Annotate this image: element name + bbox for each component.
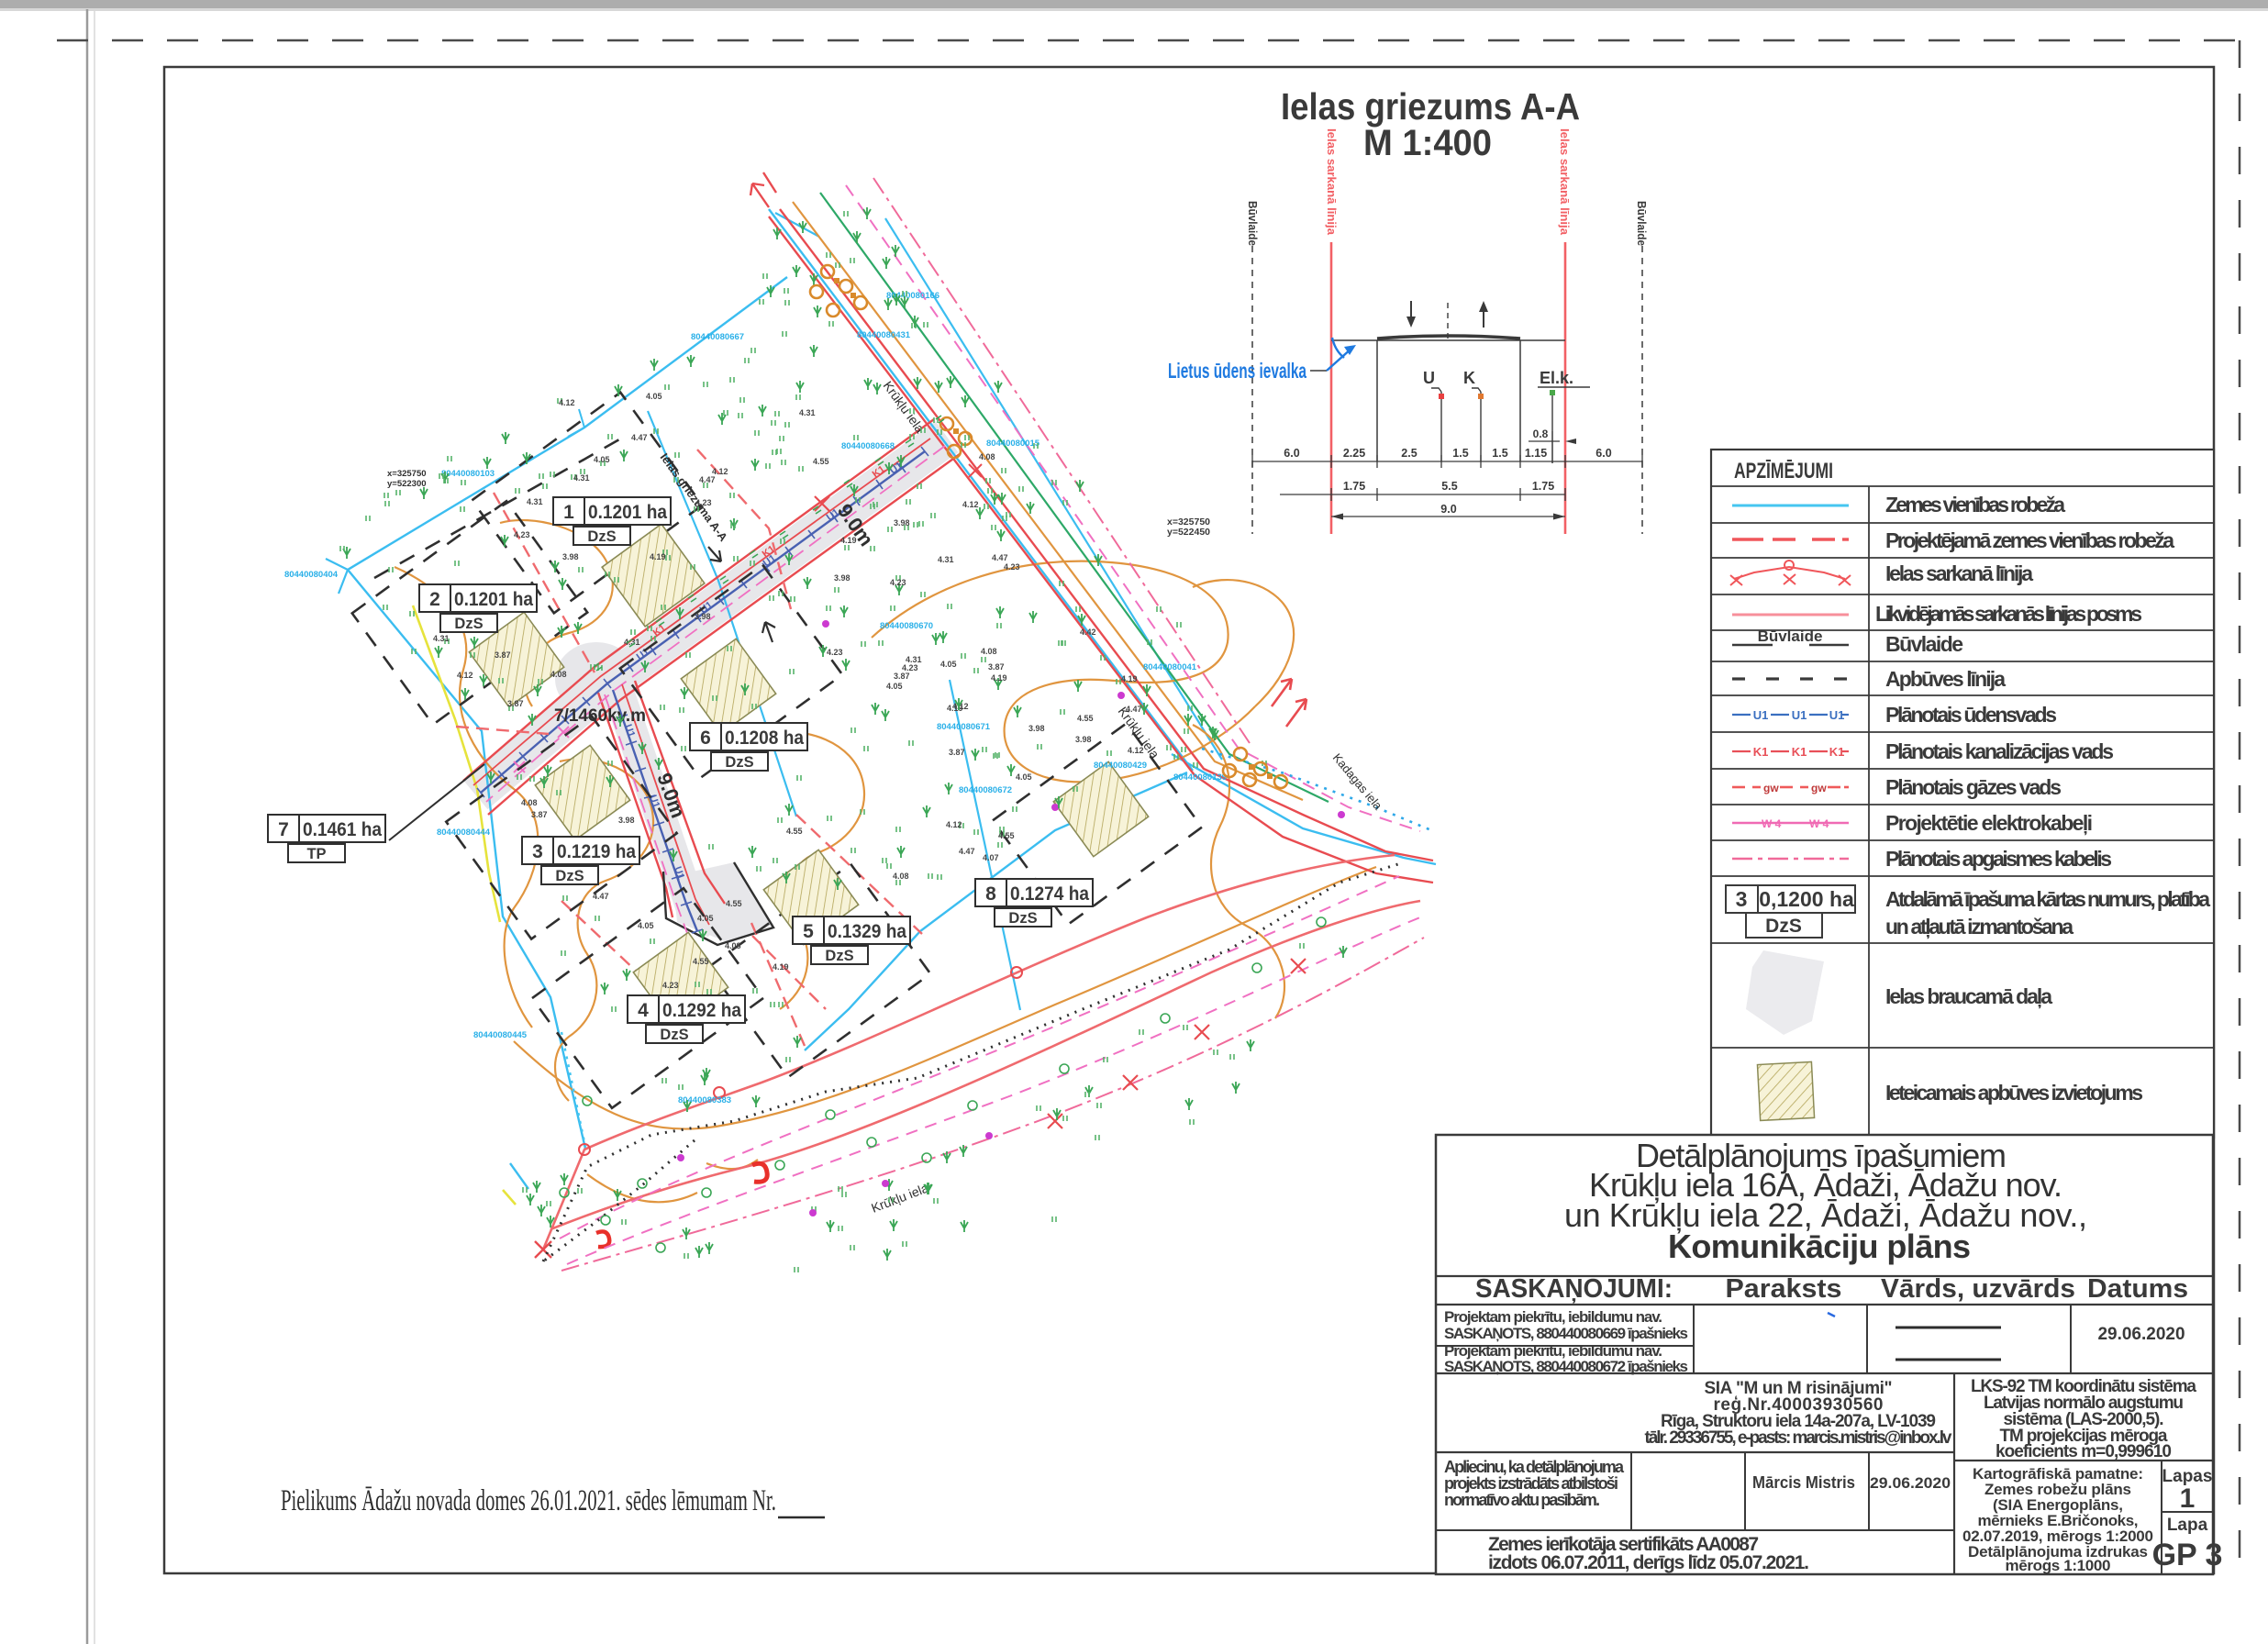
svg-text:Plānotais gāzes vads: Plānotais gāzes vads: [1885, 775, 2062, 799]
svg-text:tālr. 29336755, e-pasts: marci: tālr. 29336755, e-pasts: marcis.mistris@…: [1645, 1428, 1952, 1448]
svg-text:1: 1: [2180, 1483, 2196, 1514]
svg-text:izdots 06.07.2011, derīgs līdz: izdots 06.07.2011, derīgs līdz 05.07.202…: [1488, 1552, 1809, 1573]
svg-text:DzS: DzS: [587, 528, 616, 545]
svg-text:gw: gw: [1811, 782, 1827, 794]
svg-text:80440080139: 80440080139: [1173, 772, 1227, 783]
svg-text:4.47: 4.47: [699, 475, 716, 484]
svg-text:4.19: 4.19: [947, 704, 963, 713]
svg-text:80440080667: 80440080667: [691, 332, 744, 342]
svg-text:80440080404: 80440080404: [284, 570, 339, 580]
svg-text:2.25: 2.25: [1343, 447, 1365, 460]
svg-text:80440080671: 80440080671: [937, 722, 991, 732]
svg-text:0,1200 ha: 0,1200 ha: [1759, 887, 1854, 911]
svg-text:TP: TP: [306, 846, 326, 862]
svg-text:K1: K1: [1792, 745, 1807, 759]
svg-text:U1: U1: [1753, 708, 1769, 722]
svg-text:DzS: DzS: [454, 616, 483, 632]
svg-text:80440080672: 80440080672: [959, 785, 1012, 795]
svg-text:29.06.2020: 29.06.2020: [1870, 1474, 1951, 1492]
svg-text:APZĪMĒJUMI: APZĪMĒJUMI: [1734, 459, 1833, 483]
svg-text:Plānotais apgaismes kabelis: Plānotais apgaismes kabelis: [1885, 847, 2112, 871]
svg-text:3.87: 3.87: [988, 662, 1005, 672]
svg-text:4.08: 4.08: [893, 872, 909, 881]
svg-text:4.55: 4.55: [998, 831, 1015, 840]
svg-text:4.23: 4.23: [902, 663, 918, 672]
svg-text:1.15: 1.15: [1525, 447, 1547, 460]
svg-text:2: 2: [429, 589, 440, 610]
svg-text:U: U: [1423, 369, 1435, 387]
svg-text:DzS: DzS: [725, 754, 753, 771]
svg-text:4.31: 4.31: [433, 634, 450, 643]
svg-text:y=522300: y=522300: [387, 479, 427, 489]
svg-text:3.98: 3.98: [894, 518, 910, 528]
svg-text:4.55: 4.55: [693, 957, 709, 966]
svg-text:4.08: 4.08: [550, 670, 567, 679]
svg-text:El.k.: El.k.: [1540, 369, 1573, 387]
svg-text:4.47: 4.47: [631, 433, 648, 442]
svg-text:29.06.2020: 29.06.2020: [2097, 1325, 2185, 1344]
svg-text:U1: U1: [1792, 708, 1807, 722]
svg-text:4.08: 4.08: [981, 647, 997, 656]
svg-text:Ielas sarkanā līnija: Ielas sarkanā līnija: [1885, 561, 2033, 585]
svg-text:un atļautā izmantošana: un atļautā izmantošana: [1885, 915, 2073, 939]
svg-text:SASKAŅOTS, 880440080669 īpašni: SASKAŅOTS, 880440080669 īpašnieks: [1444, 1325, 1688, 1342]
svg-text:1: 1: [563, 502, 574, 523]
svg-text:80440080668: 80440080668: [841, 441, 895, 451]
svg-text:4.05: 4.05: [646, 392, 662, 401]
svg-text:3.98: 3.98: [1075, 735, 1092, 744]
svg-text:0.1292 ha: 0.1292 ha: [662, 1000, 741, 1021]
svg-text:Projektam piekrītu, iebildumu: Projektam piekrītu, iebildumu nav.: [1444, 1308, 1662, 1326]
svg-text:80440080431: 80440080431: [857, 330, 911, 340]
svg-text:3: 3: [532, 841, 543, 862]
svg-text:4.12: 4.12: [962, 500, 979, 509]
svg-text:4.31: 4.31: [573, 473, 590, 483]
svg-text:Būvlaide: Būvlaide: [1885, 632, 1963, 656]
svg-text:0.1208 ha: 0.1208 ha: [725, 728, 804, 749]
svg-text:80440080041: 80440080041: [1143, 662, 1197, 672]
svg-text:4.19: 4.19: [991, 673, 1007, 683]
svg-text:4.55: 4.55: [1077, 714, 1094, 723]
svg-text:4.47: 4.47: [959, 847, 975, 856]
svg-text:4.19: 4.19: [773, 962, 789, 972]
svg-text:3.87: 3.87: [507, 699, 524, 708]
svg-text:9.0: 9.0: [1440, 503, 1456, 516]
svg-text:SASKAŅOJUMI:: SASKAŅOJUMI:: [1475, 1274, 1673, 1304]
svg-text:Būvlaide: Būvlaide: [1758, 628, 1823, 645]
svg-text:Projektējamā zemes vienības ro: Projektējamā zemes vienības robeža: [1885, 528, 2174, 552]
svg-text:6.0: 6.0: [1284, 447, 1299, 460]
svg-text:3.87: 3.87: [531, 810, 548, 819]
svg-text:2.5: 2.5: [1401, 447, 1417, 460]
svg-text:Lietus ūdens ievalka: Lietus ūdens ievalka: [1168, 359, 1306, 383]
svg-text:Vārds, uzvārds: Vārds, uzvārds: [1881, 1274, 2075, 1304]
svg-text:0.1329 ha: 0.1329 ha: [828, 921, 906, 942]
svg-text:4.19: 4.19: [840, 536, 857, 545]
svg-text:4.55: 4.55: [786, 827, 803, 836]
svg-text:4.08: 4.08: [979, 452, 995, 461]
svg-text:W 4: W 4: [1809, 817, 1829, 830]
svg-text:0.8: 0.8: [1533, 428, 1549, 440]
svg-text:4.23: 4.23: [827, 648, 843, 657]
svg-text:4.47: 4.47: [1126, 705, 1142, 714]
svg-text:1.5: 1.5: [1452, 447, 1468, 460]
svg-text:4.47: 4.47: [593, 892, 609, 901]
svg-text:Komunikāciju plāns: Komunikāciju plāns: [1668, 1227, 1971, 1265]
svg-text:3.98: 3.98: [618, 816, 635, 825]
svg-text:80440080445: 80440080445: [473, 1030, 528, 1040]
svg-text:4.08: 4.08: [725, 941, 741, 950]
svg-text:y=522450: y=522450: [1167, 527, 1210, 538]
svg-text:0.1219 ha: 0.1219 ha: [557, 841, 636, 862]
svg-text:4.23: 4.23: [695, 498, 712, 507]
svg-text:6: 6: [700, 728, 711, 749]
svg-text:4.23: 4.23: [890, 578, 906, 587]
svg-text:Atdalāmā īpašuma kārtas numurs: Atdalāmā īpašuma kārtas numurs, platība: [1885, 887, 2210, 911]
svg-text:4.42: 4.42: [1080, 628, 1096, 637]
svg-text:4.12: 4.12: [712, 467, 728, 476]
svg-text:1.5: 1.5: [1492, 447, 1507, 460]
svg-text:4.05: 4.05: [940, 660, 957, 669]
svg-text:7: 7: [278, 819, 289, 840]
svg-text:DzS: DzS: [825, 948, 853, 964]
svg-text:4.05: 4.05: [697, 914, 714, 923]
svg-text:DzS: DzS: [1008, 910, 1037, 927]
svg-text:3.98: 3.98: [834, 573, 850, 583]
svg-text:Lapa: Lapa: [2167, 1516, 2208, 1535]
svg-text:4.47: 4.47: [992, 553, 1008, 562]
svg-text:Zemes vienības robeža: Zemes vienības robeža: [1885, 493, 2065, 517]
svg-text:koeficients m=0,999610: koeficients m=0,999610: [1996, 1442, 2172, 1461]
svg-text:4.12: 4.12: [1128, 746, 1144, 755]
svg-text:DzS: DzS: [555, 868, 584, 884]
svg-text:4.19: 4.19: [650, 552, 666, 561]
svg-text:4.07: 4.07: [983, 853, 999, 862]
svg-text:6.0: 6.0: [1595, 447, 1611, 460]
svg-text:x=325750: x=325750: [387, 469, 427, 479]
svg-text:K1: K1: [1829, 745, 1845, 759]
svg-text:3.87: 3.87: [495, 650, 511, 660]
svg-text:4.08: 4.08: [521, 798, 538, 807]
svg-text:DzS: DzS: [660, 1027, 688, 1043]
svg-text:gw: gw: [1763, 782, 1779, 794]
svg-text:4.05: 4.05: [594, 455, 610, 464]
svg-text:4.31: 4.31: [527, 497, 543, 506]
svg-text:80440080444: 80440080444: [437, 828, 491, 838]
svg-text:Ielas braucamā daļa: Ielas braucamā daļa: [1885, 984, 2052, 1008]
svg-text:Apbūves līnija: Apbūves līnija: [1885, 667, 2006, 691]
svg-text:3.98: 3.98: [562, 552, 579, 561]
svg-text:normatīvo aktu pasībām.: normatīvo aktu pasībām.: [1444, 1491, 1600, 1509]
svg-text:80440080429: 80440080429: [1094, 761, 1147, 771]
svg-text:5: 5: [803, 921, 814, 942]
svg-text:4.31: 4.31: [938, 555, 954, 564]
svg-text:projekts izstrādāts atbilstoši: projekts izstrādāts atbilstoši: [1444, 1474, 1618, 1493]
svg-text:4.05: 4.05: [638, 921, 654, 930]
svg-text:Ielas sarkanā līnija: Ielas sarkanā līnija: [1325, 128, 1339, 236]
svg-text:Likvidējamās sarkanās līnijas: Likvidējamās sarkanās līnijas posms: [1875, 602, 2142, 626]
svg-text:Plānotais kanalizācijas vads: Plānotais kanalizācijas vads: [1885, 739, 2114, 763]
svg-text:4.23: 4.23: [662, 981, 679, 990]
svg-text:4: 4: [638, 1000, 649, 1021]
svg-text:M 1:400: M 1:400: [1363, 123, 1492, 163]
svg-text:80440080383: 80440080383: [678, 1095, 731, 1105]
svg-text:U1: U1: [1829, 708, 1845, 722]
svg-text:4.12: 4.12: [946, 820, 962, 829]
svg-text:GP 3: GP 3: [2152, 1538, 2223, 1572]
svg-text:4.19: 4.19: [1121, 674, 1138, 683]
svg-text:4.23: 4.23: [514, 530, 530, 539]
svg-text:Būvlaide: Būvlaide: [1635, 201, 1649, 246]
svg-text:0.1461 ha: 0.1461 ha: [303, 819, 382, 840]
svg-text:4.55: 4.55: [726, 899, 742, 908]
svg-text:Plānotais ūdensvads: Plānotais ūdensvads: [1885, 703, 2057, 727]
svg-text:4.55: 4.55: [813, 457, 829, 466]
svg-text:3: 3: [1736, 887, 1748, 911]
svg-text:0.1201 ha: 0.1201 ha: [454, 589, 533, 610]
svg-text:Ielas sarkanā līnija: Ielas sarkanā līnija: [1558, 128, 1572, 236]
svg-text:3.87: 3.87: [894, 672, 910, 681]
svg-text:Ielas griezums A-A: Ielas griezums A-A: [1281, 85, 1580, 128]
svg-text:0.1201 ha: 0.1201 ha: [588, 502, 667, 523]
svg-text:DzS: DzS: [1765, 916, 1802, 937]
svg-text:4.05: 4.05: [886, 682, 903, 691]
svg-text:Mārcis Mistris: Mārcis Mistris: [1752, 1473, 1855, 1492]
svg-text:80440080015: 80440080015: [986, 439, 1040, 449]
svg-text:Apliecinu, ka detālplānojuma: Apliecinu, ka detālplānojuma: [1444, 1458, 1625, 1476]
svg-text:80440080670: 80440080670: [880, 621, 933, 631]
svg-text:K1: K1: [1753, 745, 1769, 759]
svg-text:3.98: 3.98: [695, 612, 711, 621]
svg-text:4.05: 4.05: [1016, 772, 1032, 782]
svg-text:mērogs 1:1000: mērogs 1:1000: [2006, 1557, 2111, 1574]
svg-text:Projektētie elektrokabeļi: Projektētie elektrokabeļi: [1885, 811, 2093, 835]
svg-text:4.23: 4.23: [1004, 562, 1020, 572]
svg-text:3.98: 3.98: [1028, 724, 1045, 733]
svg-text:Ieteicamais apbūves izvietojum: Ieteicamais apbūves izvietojums: [1885, 1081, 2143, 1105]
svg-text:8: 8: [985, 883, 996, 905]
svg-text:Paraksts: Paraksts: [1726, 1274, 1842, 1304]
svg-text:1.75: 1.75: [1532, 480, 1554, 493]
svg-text:0.1274 ha: 0.1274 ha: [1010, 883, 1089, 905]
svg-text:1.75: 1.75: [1343, 480, 1365, 493]
svg-text:7/1460kv.m: 7/1460kv.m: [554, 706, 646, 726]
svg-text:5.5: 5.5: [1441, 480, 1457, 493]
svg-text:Būvlaide: Būvlaide: [1246, 201, 1260, 246]
svg-text:4.12: 4.12: [457, 671, 473, 680]
svg-text:K: K: [1463, 369, 1475, 387]
svg-text:3.87: 3.87: [949, 748, 965, 757]
svg-text:4.31: 4.31: [799, 408, 816, 417]
svg-text:4.12: 4.12: [559, 398, 575, 407]
svg-text:Pielikums Ādažu novada domes 2: Pielikums Ādažu novada domes 26.01.2021.…: [281, 1484, 776, 1517]
svg-text:W 4: W 4: [1762, 817, 1782, 830]
svg-text:Datums: Datums: [2087, 1274, 2188, 1304]
